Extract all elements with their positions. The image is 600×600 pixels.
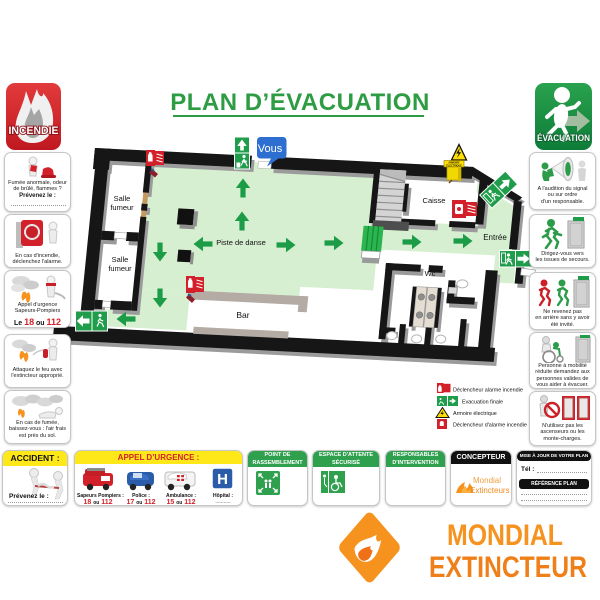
svg-text:Caisse: Caisse: [423, 196, 446, 205]
svg-text:Salle: Salle: [112, 255, 129, 264]
svg-text:Bar: Bar: [236, 310, 249, 320]
svg-text:Déclencheur d'alarme incendie: Déclencheur d'alarme incendie: [453, 423, 527, 429]
svg-text:ÉVACUATION: ÉVACUATION: [537, 133, 590, 144]
svg-text:Piste de danse: Piste de danse: [216, 238, 266, 247]
svg-text:Extincteurs: Extincteurs: [470, 486, 510, 495]
svg-text:MONDIAL: MONDIAL: [447, 519, 563, 552]
svg-text:Vous: Vous: [258, 143, 283, 155]
svg-text:fumeur: fumeur: [110, 203, 134, 212]
svg-text:Salle: Salle: [114, 194, 131, 203]
svg-text:Entrée: Entrée: [483, 233, 507, 242]
svg-text:Déclencheur alarme incendie: Déclencheur alarme incendie: [453, 388, 523, 394]
svg-text:Mondial: Mondial: [473, 476, 501, 485]
svg-text:EXTINCTEUR: EXTINCTEUR: [429, 551, 587, 584]
svg-text:Armoire électrique: Armoire électrique: [453, 411, 497, 417]
svg-text:H: H: [217, 471, 228, 488]
svg-text:Wc: Wc: [425, 269, 436, 278]
svg-text:INCENDIE: INCENDIE: [9, 125, 59, 137]
svg-text:fumeur: fumeur: [108, 264, 132, 273]
svg-text:Evacuation finale: Evacuation finale: [462, 400, 503, 406]
